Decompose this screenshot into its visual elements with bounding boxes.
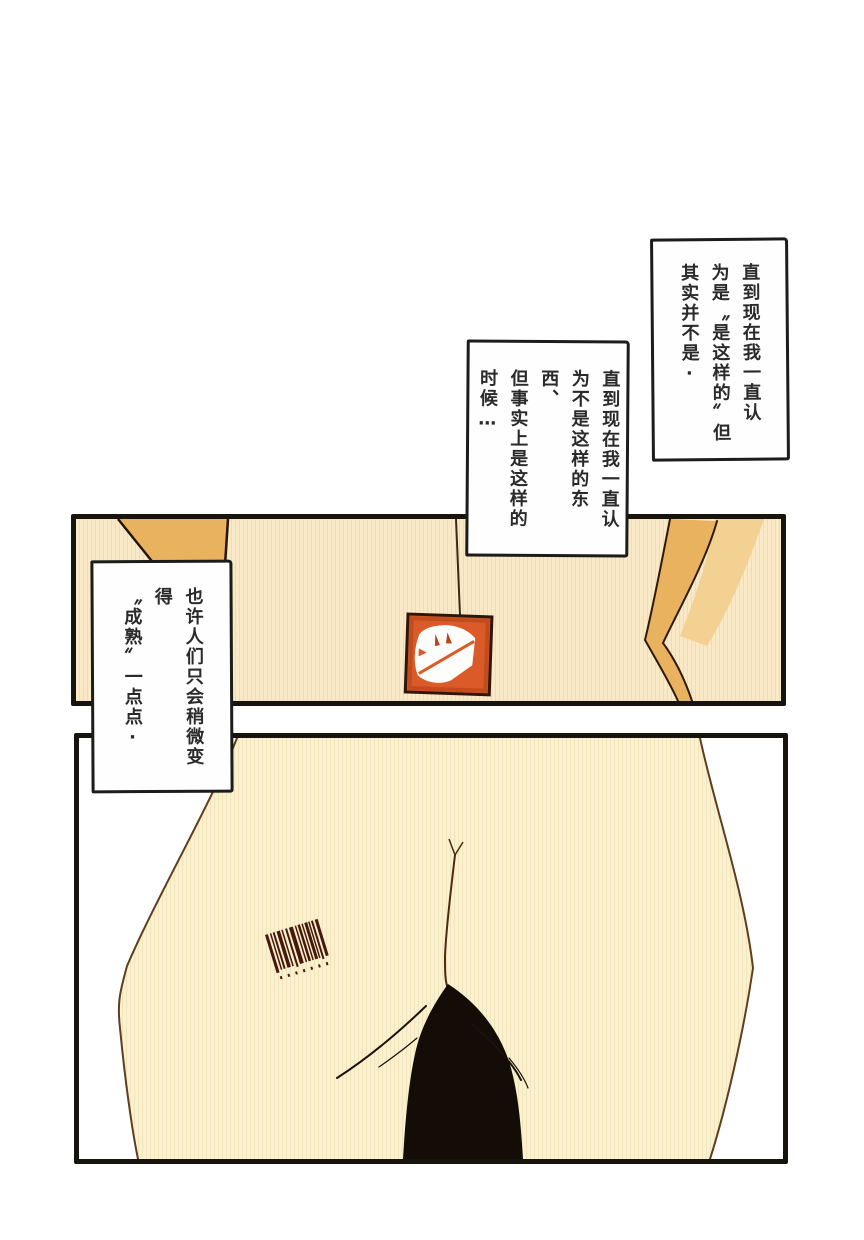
speech-bubble-middle: 直到现在我一直认 为不是这样的东西、 但事实上是这样的 时候… (465, 339, 630, 557)
speech-bubble-left: 也许人们只会稍微变得 〝成熟〞一点点· (90, 560, 233, 794)
parcel-string (456, 519, 460, 615)
tan-shape-left (118, 519, 228, 565)
speech-bubble-top-right: 直到现在我一直认 为是〝是这样的〞但 其实并不是· (650, 237, 790, 461)
panel-bottom (74, 733, 788, 1164)
manga-page: 直到现在我一直认 为是〝是这样的〞但 其实并不是· 直到现在我一直认 为不是这样… (0, 0, 864, 1240)
bubble-text: 也许人们只会稍微变得 〝成熟〞一点点· (116, 587, 209, 780)
dog-parcel-icon (405, 614, 492, 695)
bubble-text: 直到现在我一直认 为是〝是这样的〞但 其实并不是· (672, 263, 765, 447)
bubble-text: 直到现在我一直认 为不是这样的东西、 但事实上是这样的 时候… (470, 368, 624, 544)
panel-bottom-artwork (79, 738, 783, 1159)
